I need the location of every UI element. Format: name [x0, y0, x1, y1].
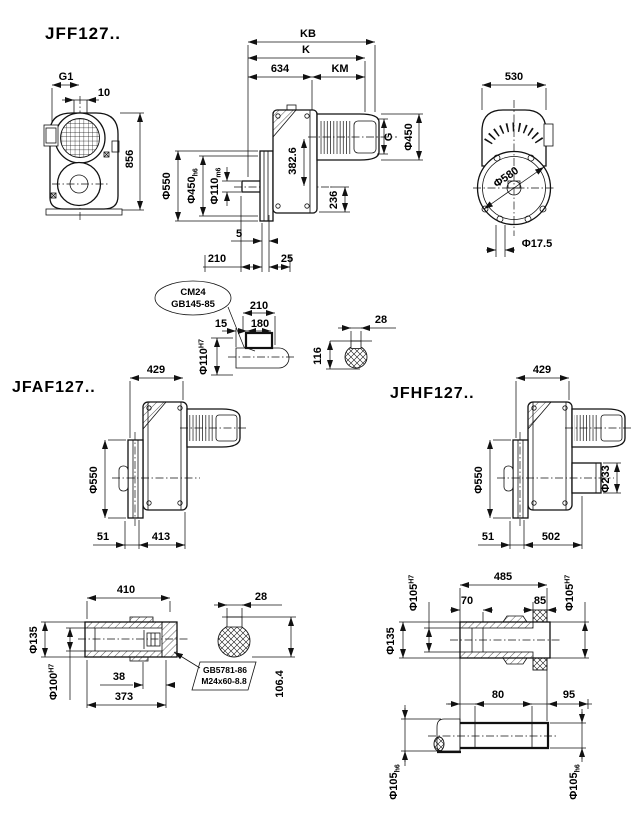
- jfaf-hollow-shaft-detail: 410 Φ135 Φ100H7 38 373: [28, 584, 296, 708]
- jff-dim-km: KM: [331, 63, 348, 75]
- jff-dim-110m6: Φ110m6: [209, 167, 223, 204]
- jff-rear-view: Φ580 530 Φ17.5: [473, 71, 555, 257]
- jff-dim-236: 236: [328, 191, 340, 209]
- jff-dim-g: G: [383, 133, 395, 142]
- shafth-dim-70: 70: [461, 595, 473, 607]
- jfaf-dim-51: 51: [97, 531, 109, 543]
- jff-dim-25: 25: [281, 253, 293, 265]
- jff-dim-kb: KB: [300, 28, 316, 40]
- jfhf-dim-550: Φ550: [473, 466, 485, 493]
- jff-dim-450motor: Φ450: [403, 123, 415, 150]
- jff-title: JFF127..: [45, 24, 121, 43]
- shaftf-dim-100: Φ100H7: [48, 664, 60, 700]
- jfhf-dim-51: 51: [482, 531, 494, 543]
- balloon-line1: CM24: [180, 287, 206, 298]
- jff-dim-10: 10: [98, 87, 110, 99]
- jff-dim-17-5: Φ17.5: [522, 238, 552, 250]
- shafth-dim-85: 85: [534, 595, 546, 607]
- jff-dim-382: 382.6: [287, 147, 299, 175]
- jff-dim-634: 634: [271, 63, 290, 75]
- shafth-dim-485: 485: [494, 571, 512, 583]
- jff-dim-210: 210: [208, 253, 226, 265]
- detail-dim-180: 180: [251, 318, 269, 330]
- gearbox-dimension-drawing: JFF127.. G1 10 856: [0, 0, 636, 823]
- hollow-shaft-detail: CM24 GB145-85 210 15 180 Φ110H7 28: [155, 281, 396, 375]
- shaftf-dim-373: 373: [115, 691, 133, 703]
- jfaf-title: JFAF127..: [12, 379, 96, 396]
- jff-dim-856: 856: [124, 150, 136, 168]
- shafth-dim-80: 80: [492, 689, 504, 701]
- shafth-dim-105b: Φ105H7: [564, 575, 576, 611]
- detail-dim-28: 28: [375, 314, 387, 326]
- shaftf-dim-28: 28: [255, 591, 267, 603]
- jfhf-view: 429 Φ550 Φ233 51 502: [473, 364, 633, 549]
- jff-side-view: KB K 634 KM Φ550 Φ450h6 Φ110m6 382.6 236: [161, 28, 423, 272]
- jfhf-title: JFHF127..: [390, 385, 475, 402]
- shaftf-dim-135: Φ135: [28, 626, 40, 653]
- detail-dim-116: 116: [312, 347, 324, 365]
- bolt-callout-line2: M24x60-8.8: [201, 676, 247, 686]
- jff-dim-5: 5: [236, 228, 242, 240]
- detail-dim-15: 15: [215, 318, 227, 330]
- jff-dim-k: K: [302, 44, 310, 56]
- jff-dim-450h6: Φ450h6: [186, 168, 200, 204]
- shafth-dim-135: Φ135: [385, 627, 397, 654]
- jfaf-dim-413: 413: [152, 531, 170, 543]
- jff-dim-530: 530: [505, 71, 523, 83]
- jfhf-dim-233: Φ233: [600, 465, 612, 492]
- technical-drawing-canvas: JFF127.. G1 10 856: [0, 0, 636, 823]
- jfaf-view: 429 Φ550 51 413: [88, 364, 248, 549]
- shaftf-dim-38: 38: [113, 671, 125, 683]
- shafth-dim-105a: Φ105H7: [408, 575, 420, 611]
- shafth-dim-95: 95: [563, 689, 575, 701]
- shaftf-dim-410: 410: [117, 584, 135, 596]
- jfhf-dim-429: 429: [533, 364, 551, 376]
- jfhf-hollow-shaft-detail: 485 70 85 Φ105H7 Φ105H7 Φ135: [385, 571, 592, 800]
- bolt-callout-line1: GB5781-86: [203, 665, 247, 675]
- shaftf-dim-106: 106.4: [274, 669, 286, 697]
- shafth-dim-105c: Φ105h6: [388, 764, 402, 800]
- detail-dim-110: Φ110H7: [198, 339, 210, 375]
- detail-dim-210: 210: [250, 300, 268, 312]
- jff-dim-g1: G1: [59, 71, 74, 83]
- jfaf-dim-429: 429: [147, 364, 165, 376]
- jfaf-dim-550: Φ550: [88, 466, 100, 493]
- jff-front-view: G1 10 856: [44, 71, 144, 222]
- balloon-line2: GB145-85: [171, 299, 216, 310]
- shafth-dim-105d: Φ105h6: [568, 764, 582, 800]
- jff-dim-550: Φ550: [161, 172, 173, 199]
- jfhf-dim-502: 502: [542, 531, 560, 543]
